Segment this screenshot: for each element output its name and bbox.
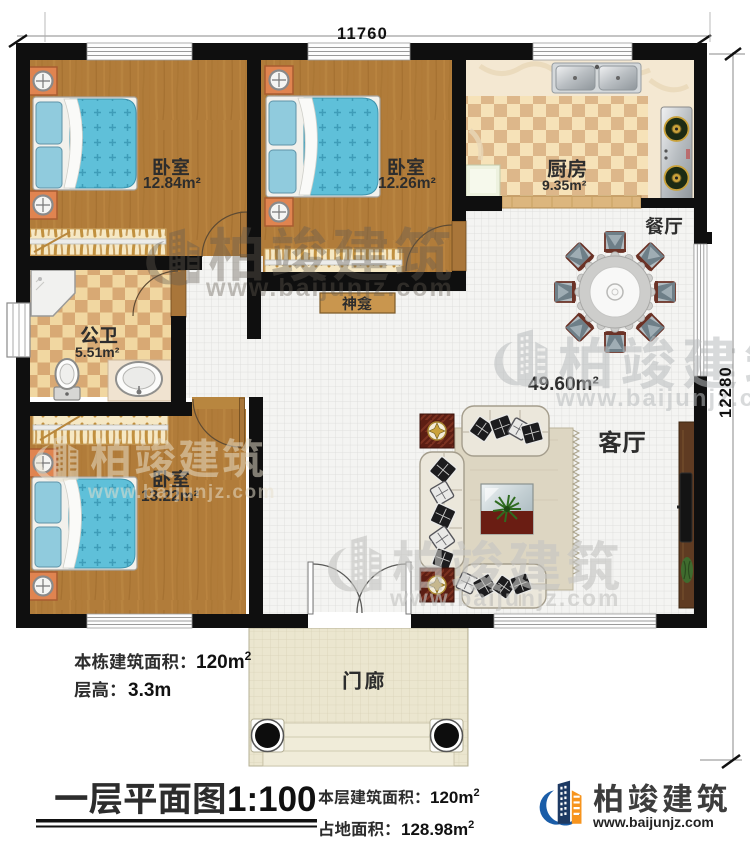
svg-text:11760: 11760 [337,25,388,43]
svg-text:www.baijunjz.com: www.baijunjz.com [87,482,276,503]
svg-text:120m2: 120m2 [196,649,252,673]
svg-text:128.98m2: 128.98m2 [401,819,474,839]
svg-text:5.51m²: 5.51m² [75,344,120,360]
svg-text:12280: 12280 [717,366,735,418]
svg-text:3.3m: 3.3m [128,680,171,701]
svg-text:120m2: 120m2 [430,787,480,807]
svg-text:1:100: 1:100 [227,780,317,819]
svg-text:9.35m²: 9.35m² [542,177,587,193]
svg-text:www.baijunjz.com: www.baijunjz.com [205,274,454,302]
svg-text:www.baijunjz.com: www.baijunjz.com [389,585,621,611]
svg-text:12.26m²: 12.26m² [378,175,436,192]
svg-text:12.84m²: 12.84m² [143,175,201,192]
svg-text:www.baijunjz.com: www.baijunjz.com [592,814,714,830]
